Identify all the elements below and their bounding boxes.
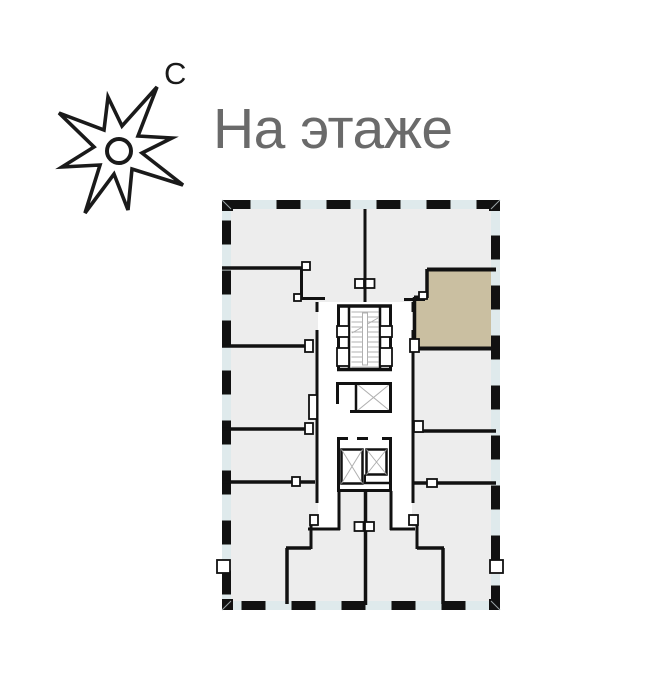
door-marker xyxy=(414,421,423,432)
compass-hub-icon xyxy=(107,139,131,163)
floor-page: На этаже С xyxy=(0,0,660,673)
door-marker xyxy=(294,294,301,301)
compass-rose: С xyxy=(59,56,186,213)
building-outline xyxy=(222,200,500,610)
door-marker xyxy=(310,515,318,525)
stair-door-left-lower xyxy=(337,348,349,366)
floor-plan: С xyxy=(0,0,660,673)
door-marker xyxy=(355,279,364,288)
door-marker xyxy=(302,262,310,270)
stair-railing xyxy=(363,313,368,365)
door-marker xyxy=(355,522,364,531)
window-marker-left xyxy=(217,560,230,573)
door-marker xyxy=(427,479,437,487)
door-marker xyxy=(292,477,300,486)
window-marker-right xyxy=(490,560,503,573)
door-marker xyxy=(305,423,313,434)
stair-door-right-lower xyxy=(380,348,392,366)
door-marker xyxy=(365,522,374,531)
compass-north-label: С xyxy=(164,56,186,91)
stair-door-right-upper xyxy=(380,326,392,337)
door-marker xyxy=(366,279,375,288)
door-marker xyxy=(410,339,419,352)
door-marker xyxy=(309,395,317,419)
door-marker xyxy=(409,515,418,525)
door-marker xyxy=(305,340,313,352)
stair-door-left-upper xyxy=(337,326,349,337)
door-marker xyxy=(419,292,427,299)
